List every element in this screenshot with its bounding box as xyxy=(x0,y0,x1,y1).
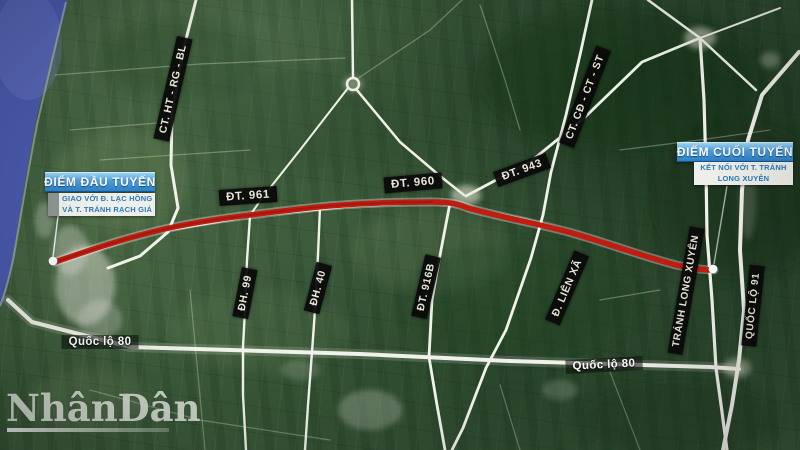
start-point-title: ĐIỂM ĐẦU TUYẾN xyxy=(45,172,155,192)
road-label-quoc-lo-80-left: Quốc lộ 80 xyxy=(62,335,139,349)
road-label-d-lien-xa: Đ. LIÊN XÃ xyxy=(545,250,589,325)
road-label-quoc-lo-80-right: Quốc lộ 80 xyxy=(565,356,642,374)
watermark-nhandan: NhânDân xyxy=(6,390,201,432)
road-label-dh-99: ĐH. 99 xyxy=(232,267,257,319)
road-label-ct-ht-rg-bl: CT. HT - RG - BL xyxy=(153,36,192,142)
end-point-subtitle: KẾT NỐI VỚI T. TRÁNH LONG XUYÊN xyxy=(694,162,793,185)
road-label-dt-943: ĐT. 943 xyxy=(493,153,551,187)
start-point-subtitle: GIAO VỚI Đ. LẠC HỒNG VÀ T. TRÁNH RẠCH GI… xyxy=(48,193,155,216)
road-label-quoc-lo-91: QUỐC LỘ 91 xyxy=(741,265,764,347)
road-label-dt-916b: ĐT. 916B xyxy=(411,255,441,320)
road-label-dt-961: ĐT. 961 xyxy=(219,186,278,206)
road-label-dh-40: ĐH. 40 xyxy=(304,262,332,315)
road-label-tranh-long-xuyen: TRÁNH LONG XUYÊN xyxy=(668,227,705,355)
watermark-text: NhânDân xyxy=(6,386,201,430)
road-label-ct-cd-ct-st: CT. CĐ - CT - ST xyxy=(559,46,611,148)
end-subtitle-line2: LONG XUYÊN xyxy=(697,174,790,184)
road-label-dt-960: ĐT. 960 xyxy=(383,173,442,194)
subtitle-thumb-square xyxy=(48,193,59,216)
end-subtitle-line1: KẾT NỐI VỚI T. TRÁNH xyxy=(697,163,790,173)
start-subtitle-line2: VÀ T. TRÁNH RẠCH GIÁ xyxy=(62,205,152,215)
route-map-screenshot: ĐIỂM ĐẦU TUYẾN GIAO VỚI Đ. LẠC HỒNG VÀ T… xyxy=(0,0,800,450)
end-point-title: ĐIỂM CUỐI TUYẾN xyxy=(677,142,793,162)
map-labels: ĐIỂM ĐẦU TUYẾN GIAO VỚI Đ. LẠC HỒNG VÀ T… xyxy=(0,0,800,450)
start-subtitle-line1: GIAO VỚI Đ. LẠC HỒNG xyxy=(62,194,152,204)
